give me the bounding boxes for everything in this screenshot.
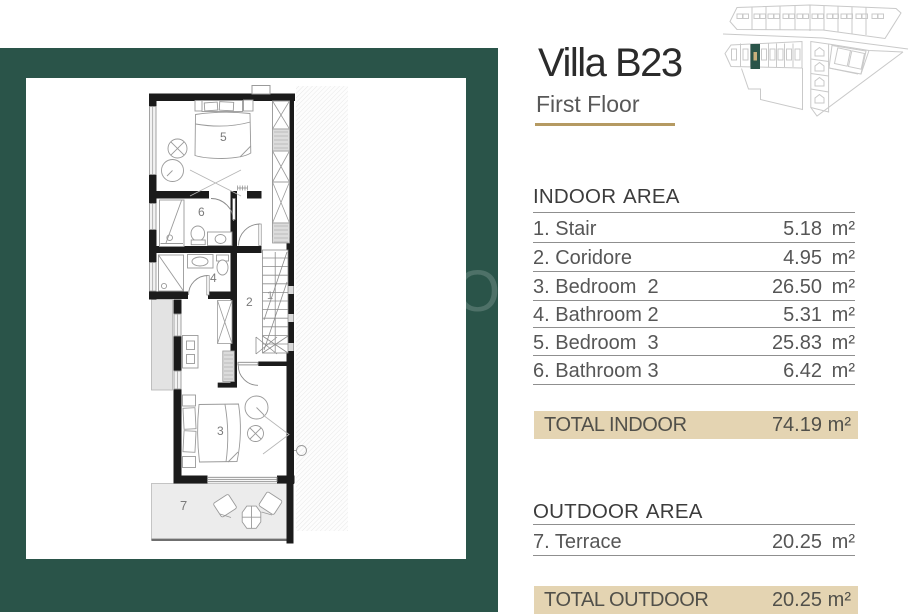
svg-text:4: 4 (210, 271, 217, 285)
svg-text:7: 7 (180, 498, 187, 513)
svg-text:3: 3 (217, 424, 224, 438)
svg-text:2: 2 (246, 295, 253, 309)
svg-text:5: 5 (220, 130, 227, 144)
svg-text:1: 1 (267, 290, 273, 302)
svg-text:6: 6 (198, 205, 205, 219)
